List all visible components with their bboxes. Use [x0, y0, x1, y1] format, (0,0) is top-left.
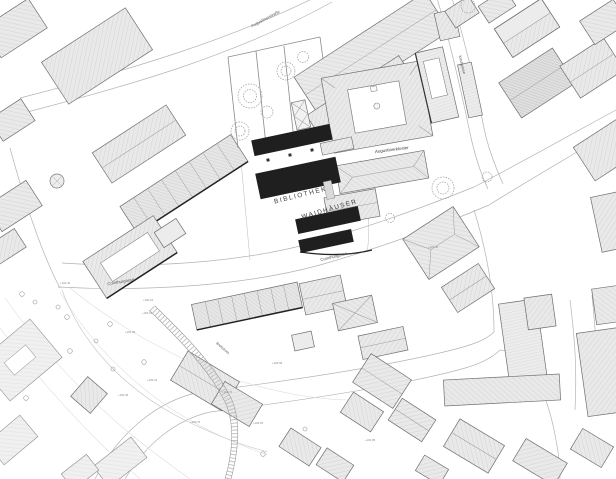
tree-icon [432, 177, 454, 199]
spot-elevation: +182.21 [143, 298, 154, 302]
terraced-building-south [191, 282, 302, 330]
spot-elevation: +182.45 [60, 281, 71, 285]
label-breitstrom: Breitstrom [215, 341, 230, 355]
spot-elevation: +182.10 [147, 378, 158, 382]
site-plan-page: BIBLIOTHEK WAIDHÄUSER Augustinerkloster … [0, 0, 616, 479]
existing-buildings-northwest [0, 0, 248, 298]
round-feature [50, 174, 64, 188]
tree-icon [231, 122, 249, 140]
stair-tower [291, 100, 311, 130]
spot-elevation: +182.72 [222, 390, 233, 394]
buildings-bottom-left [0, 319, 147, 479]
spot-elevation: +181.85 [365, 438, 376, 442]
spot-elevation: +181.98 [125, 330, 136, 334]
spot-elevation: +182.15 [190, 420, 201, 424]
label-augustinerkloster: Augustinerkloster [375, 145, 410, 154]
kloster-south-wing [335, 150, 428, 193]
label-comthurgasse-east: Comthurgasse [320, 251, 348, 263]
spot-elevation: +182.05 [253, 421, 264, 425]
site-plan-map: BIBLIOTHEK WAIDHÄUSER Augustinerkloster … [0, 0, 616, 479]
gabled-building-east [403, 207, 479, 280]
spot-elevation: +182.35 [118, 393, 129, 397]
spot-elevation: +182.63 [142, 311, 153, 315]
tree-icon [238, 84, 262, 108]
spot-elevation: +182.58 [272, 361, 283, 365]
tree-icon [386, 214, 395, 223]
tree-icon [298, 52, 309, 63]
spot-elevation: +182.30 [428, 245, 439, 249]
existing-buildings-northeast [403, 0, 616, 313]
label-augustinerstrasse: Augustinerstraße [250, 9, 281, 29]
